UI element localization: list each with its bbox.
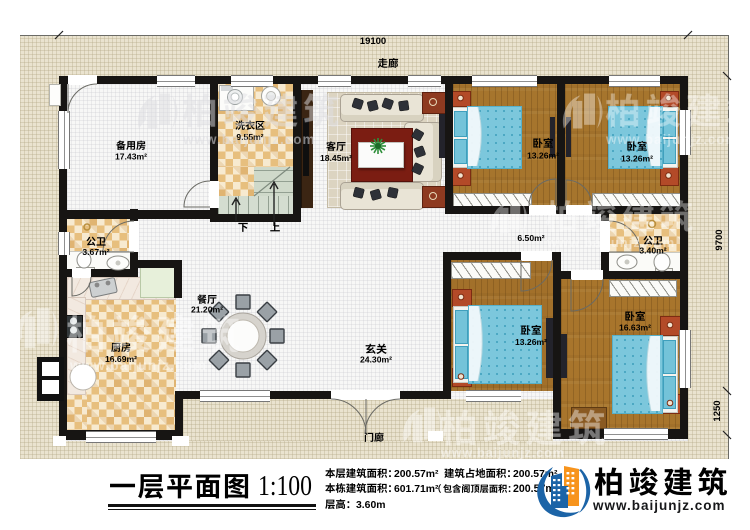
svg-text:3.67m²: 3.67m²: [82, 247, 109, 257]
svg-text:www.baijunjz.com: www.baijunjz.com: [605, 132, 739, 147]
svg-text:16.63m²: 16.63m²: [619, 323, 651, 333]
svg-text:19100: 19100: [360, 36, 386, 47]
svg-text:17.43m²: 17.43m²: [115, 152, 147, 162]
svg-text:21.20m²: 21.20m²: [191, 305, 223, 315]
svg-text:24.30m²: 24.30m²: [360, 355, 392, 365]
svg-text:www.baijunjz.com: www.baijunjz.com: [592, 498, 726, 513]
svg-text:13.26m²: 13.26m²: [515, 337, 547, 347]
svg-text:9700: 9700: [714, 229, 725, 250]
svg-text:6.50m²: 6.50m²: [517, 233, 544, 243]
svg-text:www.baijunjz.com: www.baijunjz.com: [182, 132, 316, 147]
svg-text:www.baijunjz.com: www.baijunjz.com: [546, 235, 675, 250]
svg-text:200.57m²: 200.57m²: [394, 469, 439, 480]
svg-text:1:100: 1:100: [258, 470, 312, 502]
svg-text:www.baijunjz.com: www.baijunjz.com: [69, 357, 207, 373]
svg-text:3.60m: 3.60m: [356, 500, 385, 511]
svg-text:www.baijunjz.com: www.baijunjz.com: [440, 446, 565, 460]
svg-text:601.71m²: 601.71m²: [394, 484, 439, 495]
svg-text:13.26m²: 13.26m²: [621, 154, 653, 164]
svg-text:13.26m²: 13.26m²: [527, 151, 559, 161]
svg-text:1250: 1250: [712, 400, 723, 421]
svg-text:18.45m²: 18.45m²: [320, 153, 352, 163]
